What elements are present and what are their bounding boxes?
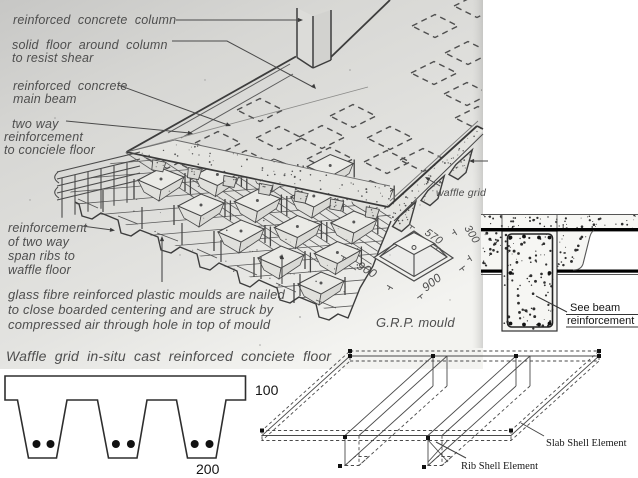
svg-text:glass fibre reinforced plastic: glass fibre reinforced plastic moulds ar… bbox=[8, 287, 286, 302]
svg-text:main beam: main beam bbox=[13, 92, 77, 106]
svg-text:100: 100 bbox=[255, 382, 279, 398]
svg-text:of two way: of two way bbox=[8, 235, 70, 249]
svg-text:reinforcement: reinforcement bbox=[8, 221, 87, 235]
svg-text:reinforced concrete: reinforced concrete bbox=[13, 79, 127, 93]
svg-text:solid floor around column: solid floor around column bbox=[12, 38, 168, 52]
svg-text:span ribs to: span ribs to bbox=[8, 249, 75, 263]
svg-text:G.R.P. mould: G.R.P. mould bbox=[376, 315, 455, 330]
svg-text:to resist shear: to resist shear bbox=[12, 51, 94, 65]
svg-text:compressed air through hole in: compressed air through hole in top of mo… bbox=[8, 317, 271, 332]
svg-text:to conciele floor: to conciele floor bbox=[4, 143, 96, 157]
svg-text:waffle grid: waffle grid bbox=[436, 187, 487, 199]
svg-text:Slab Shell Element: Slab Shell Element bbox=[546, 438, 627, 449]
svg-text:reinforcement: reinforcement bbox=[4, 130, 83, 144]
svg-text:See beam: See beam bbox=[570, 302, 620, 314]
svg-text:two way: two way bbox=[12, 117, 59, 131]
svg-text:to close boarded centering and: to close boarded centering and are struc… bbox=[8, 302, 275, 317]
svg-text:Waffle grid in-situ cast r: Waffle grid in-situ cast reinforced conc… bbox=[6, 348, 332, 364]
svg-text:reinforcement: reinforcement bbox=[567, 315, 634, 327]
svg-text:200: 200 bbox=[196, 461, 220, 477]
svg-text:Rib Shell Element: Rib Shell Element bbox=[461, 461, 538, 472]
svg-text:waffle floor: waffle floor bbox=[8, 263, 71, 277]
svg-text:reinforced concrete column: reinforced concrete column bbox=[13, 13, 176, 27]
